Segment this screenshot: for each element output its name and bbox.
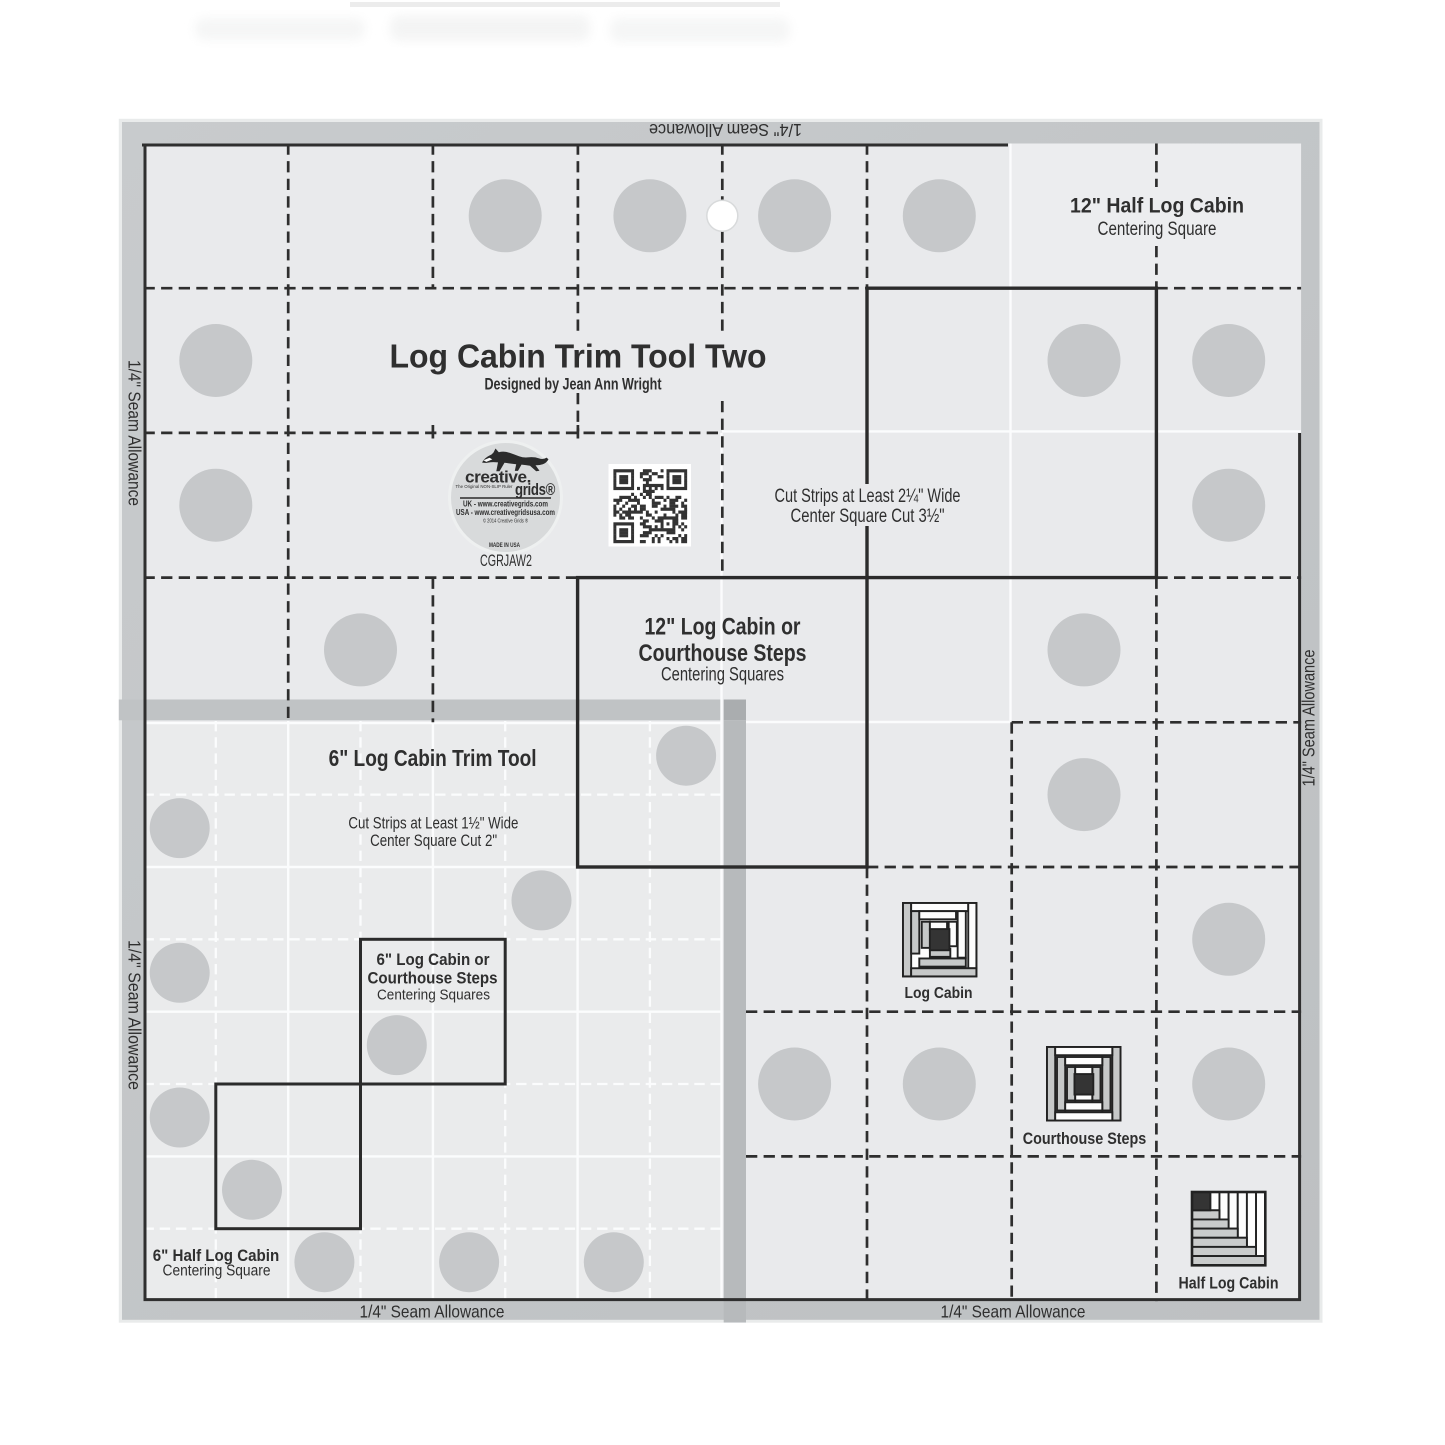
- svg-text:1/4" Seam Allowance: 1/4" Seam Allowance: [125, 940, 145, 1090]
- svg-text:1/4" Seam Allowance: 1/4" Seam Allowance: [941, 1302, 1086, 1322]
- svg-text:Center Square Cut 2": Center Square Cut 2": [370, 831, 497, 850]
- svg-text:Half Log Cabin: Half Log Cabin: [1179, 1274, 1279, 1293]
- svg-text:Centering Squares: Centering Squares: [661, 665, 784, 686]
- svg-text:The Original NON-SLIP Ruler: The Original NON-SLIP Ruler: [456, 484, 513, 489]
- svg-text:Courthouse Steps: Courthouse Steps: [1023, 1129, 1147, 1148]
- svg-text:6" Log Cabin or: 6" Log Cabin or: [377, 950, 490, 969]
- svg-text:6" Log Cabin Trim Tool: 6" Log Cabin Trim Tool: [329, 745, 537, 771]
- svg-text:Centering Square: Centering Square: [163, 1263, 271, 1280]
- svg-text:Designed by Jean Ann Wright: Designed by Jean Ann Wright: [485, 375, 662, 394]
- svg-text:1/4" Seam Allowance: 1/4" Seam Allowance: [1299, 650, 1319, 787]
- svg-text:Cut Strips at Least 1½" Wide: Cut Strips at Least 1½" Wide: [348, 814, 518, 833]
- svg-text:1/4" Seam Allowance: 1/4" Seam Allowance: [360, 1302, 505, 1322]
- svg-text:Courthouse Steps: Courthouse Steps: [368, 970, 498, 988]
- svg-text:Cut Strips at Least 2¼" Wide: Cut Strips at Least 2¼" Wide: [775, 486, 961, 507]
- svg-text:Log Cabin Trim Tool Two: Log Cabin Trim Tool Two: [390, 338, 767, 375]
- svg-text:CGRJAW2: CGRJAW2: [480, 551, 532, 570]
- svg-text:USA - www.creativegridsusa.com: USA - www.creativegridsusa.com: [456, 508, 555, 517]
- svg-text:1/4" Seam Allowance: 1/4" Seam Allowance: [649, 120, 802, 140]
- svg-text:12" Half Log Cabin: 12" Half Log Cabin: [1070, 195, 1244, 218]
- svg-text:Courthouse Steps: Courthouse Steps: [639, 640, 807, 667]
- svg-text:Centering Squares: Centering Squares: [377, 987, 490, 1004]
- svg-text:Log Cabin: Log Cabin: [905, 985, 973, 1002]
- svg-text:grids®: grids®: [515, 481, 555, 499]
- svg-text:Center Square Cut 3½": Center Square Cut 3½": [791, 506, 945, 527]
- svg-text:MADE IN USA: MADE IN USA: [489, 542, 520, 549]
- svg-text:1/4" Seam Allowance: 1/4" Seam Allowance: [125, 360, 145, 506]
- svg-text:© 2014 Creative Grids ®: © 2014 Creative Grids ®: [483, 518, 529, 525]
- svg-text:12" Log Cabin or: 12" Log Cabin or: [645, 614, 801, 641]
- svg-text:Centering Square: Centering Square: [1098, 219, 1217, 240]
